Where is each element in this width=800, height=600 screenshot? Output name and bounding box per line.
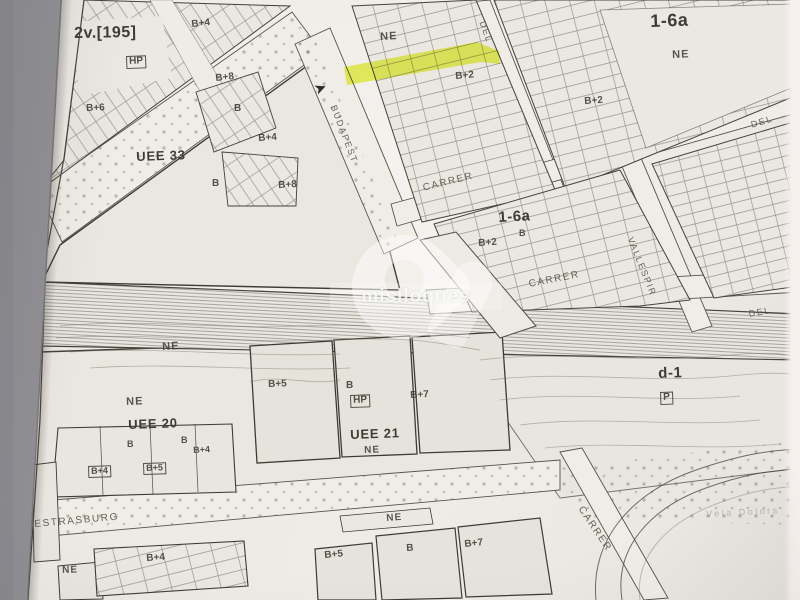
photographed-zoning-map: ➤ 2v.[195]HPB+4B+8B+6BB+4UEE 33BB+8NEB+2… xyxy=(0,0,800,600)
map-label: B+4 xyxy=(258,133,277,144)
map-label: B+8 xyxy=(278,180,297,191)
map-label: DEL xyxy=(750,114,774,129)
map-label: B+4 xyxy=(146,553,165,564)
map-label: UEE 21 xyxy=(350,426,400,441)
map-label: CARRER xyxy=(528,270,581,290)
map-label: B+2 xyxy=(478,238,497,249)
map-label: B xyxy=(234,104,241,114)
map-label: VALLESPIR xyxy=(626,236,658,298)
map-label: 2v.[195] xyxy=(74,25,137,42)
map-label: B xyxy=(127,440,134,449)
map-label: NE xyxy=(672,49,690,61)
map-label: UEE 33 xyxy=(136,148,186,163)
map-label: 1-6a xyxy=(650,11,689,30)
map-label: NE xyxy=(162,341,180,353)
map-label: NE xyxy=(364,445,380,456)
map-label: B+4 xyxy=(193,445,210,455)
map-label: DEL xyxy=(478,20,494,44)
map-label: BUDAPEST xyxy=(329,104,359,164)
labels-layer: ➤ 2v.[195]HPB+4B+8B+6BB+4UEE 33BB+8NEB+2… xyxy=(0,0,800,600)
map-label: HP xyxy=(350,394,370,408)
map-label: P xyxy=(660,392,673,405)
map-label: B xyxy=(346,381,353,391)
map-label: HP xyxy=(126,55,146,69)
map-label: ESTRASBURG xyxy=(34,513,119,530)
map-label: CARRER xyxy=(422,171,475,193)
map-label: B+4 xyxy=(191,18,211,30)
map-label: B xyxy=(519,229,526,238)
map-label: NE xyxy=(62,565,78,576)
map-label: d-1 xyxy=(658,365,683,381)
map-label: DEL xyxy=(748,306,772,319)
map-label: B+8 xyxy=(215,72,235,84)
photo-background-edge xyxy=(0,0,13,600)
map-label: B+5 xyxy=(324,549,343,561)
map-label: B+2 xyxy=(584,96,603,107)
map-label: B+2 xyxy=(455,70,474,82)
map-label: B+7 xyxy=(464,538,484,550)
map-label: Vela Dolors xyxy=(706,506,780,519)
map-label: B xyxy=(212,179,219,189)
map-label: B xyxy=(406,543,414,553)
map-label: B+5 xyxy=(143,462,166,475)
map-label: B xyxy=(181,436,188,445)
map-label: B+7 xyxy=(410,390,429,401)
map-label: CARRER xyxy=(576,505,613,554)
photo-background-right xyxy=(784,0,800,600)
map-label: NE xyxy=(386,513,403,524)
map-label: NE xyxy=(380,31,398,43)
map-label: B+5 xyxy=(268,379,287,390)
parcel-arrow-icon: ➤ xyxy=(311,77,329,98)
map-label: NE xyxy=(126,396,144,408)
map-label: B+6 xyxy=(86,103,105,114)
map-label: B+4 xyxy=(88,465,111,478)
map-label: 1-6a xyxy=(498,208,531,225)
map-label: UEE 20 xyxy=(128,416,178,431)
